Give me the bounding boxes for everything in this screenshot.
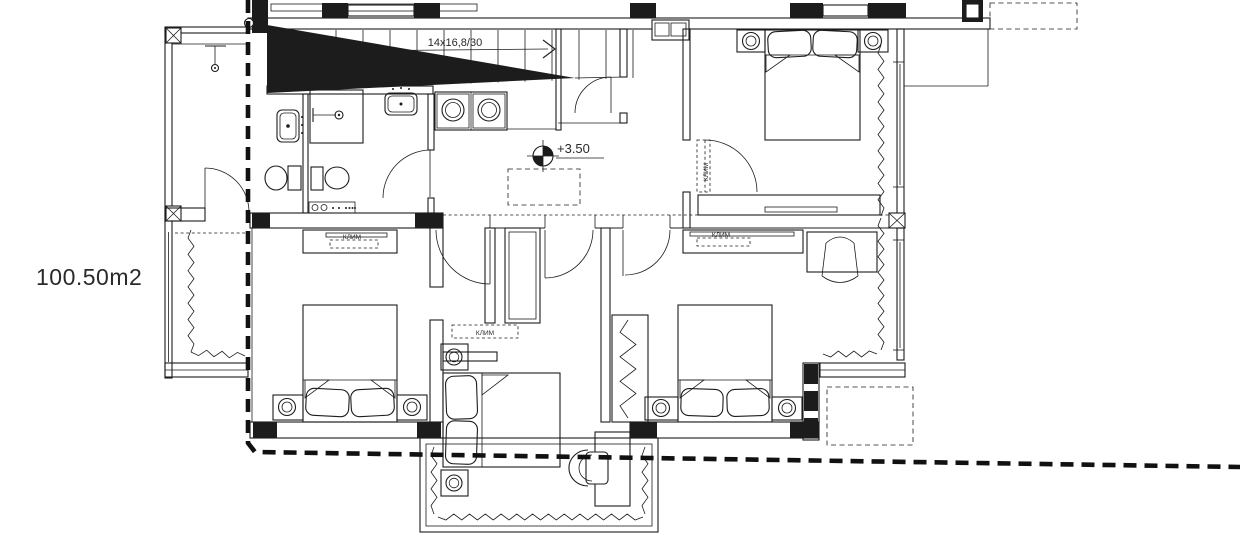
desk bbox=[807, 232, 877, 272]
roof-overhang-outline bbox=[990, 3, 1077, 29]
level-datum-marker bbox=[527, 140, 559, 172]
curtain-zigzag bbox=[878, 45, 884, 216]
ac-unit-outline bbox=[697, 238, 750, 246]
ceiling-light-icon bbox=[205, 46, 226, 72]
curtain-zigzag bbox=[188, 230, 194, 352]
pillow bbox=[445, 375, 477, 419]
curtain-zigzag bbox=[823, 351, 877, 357]
bathroom-right bbox=[309, 87, 434, 213]
stair-cut-wedge bbox=[267, 25, 575, 93]
level-label: +3.50 bbox=[557, 141, 590, 156]
double-bed bbox=[303, 305, 397, 422]
nightstand bbox=[737, 30, 765, 52]
terrace-bottom bbox=[420, 432, 658, 532]
pillow bbox=[350, 388, 394, 417]
window bbox=[893, 62, 904, 187]
pillow bbox=[767, 30, 811, 58]
ac-label: КЛИМ bbox=[712, 232, 730, 239]
ac-unit-outline: КЛИМ bbox=[452, 325, 518, 338]
nightstand bbox=[273, 395, 303, 420]
towel-radiator bbox=[309, 202, 356, 213]
floor-plan-drawing: 14x16,8/30 bbox=[0, 0, 1240, 543]
pillow bbox=[812, 30, 857, 58]
column bbox=[166, 28, 181, 43]
clothes-zigzag bbox=[620, 320, 636, 418]
toilet bbox=[265, 166, 301, 190]
washing-machine bbox=[473, 94, 505, 128]
upper-hall: +3.50 bbox=[508, 20, 689, 205]
landing-door bbox=[575, 77, 611, 113]
nightstand bbox=[858, 30, 888, 52]
floor-plan-canvas: 14x16,8/30 bbox=[0, 0, 1240, 543]
pillow bbox=[445, 420, 477, 464]
closet bbox=[505, 228, 540, 323]
bathroom-left bbox=[265, 86, 433, 213]
wardrobe bbox=[698, 195, 880, 215]
bedroom-door: КЛИМ bbox=[697, 140, 757, 192]
wardrobe: КЛИМ bbox=[303, 230, 397, 253]
railing-zigzag bbox=[438, 514, 643, 520]
corridor bbox=[250, 213, 890, 284]
nightstand bbox=[772, 397, 802, 420]
shower bbox=[310, 90, 363, 143]
left-balcony-lower bbox=[165, 230, 248, 377]
wardrobe bbox=[612, 315, 648, 422]
desk-chair bbox=[822, 237, 858, 283]
sink bbox=[277, 110, 303, 142]
curtain-zigzag bbox=[878, 218, 884, 350]
wardrobe: КЛИМ bbox=[683, 230, 803, 253]
ac-label: КЛИМ bbox=[476, 330, 494, 337]
canopy-outline bbox=[827, 387, 913, 445]
staircase: 14x16,8/30 bbox=[267, 25, 633, 93]
ac-label: КЛИМ bbox=[703, 163, 710, 181]
balcony-door bbox=[205, 168, 249, 212]
nightstand bbox=[441, 344, 468, 370]
bedroom-top-right: КЛИМ bbox=[683, 29, 905, 228]
window bbox=[893, 240, 904, 350]
ac-unit-outline bbox=[330, 240, 378, 248]
area-label: 100.50m2 bbox=[36, 264, 142, 290]
double-bed bbox=[765, 30, 860, 140]
washing-machine bbox=[437, 94, 469, 128]
nightstand bbox=[397, 395, 427, 420]
corridor-door bbox=[623, 230, 670, 276]
curtain-zigzag bbox=[191, 350, 245, 358]
terrace-top-right bbox=[904, 3, 1077, 86]
corridor-door bbox=[545, 230, 593, 278]
sink bbox=[385, 87, 417, 115]
nightstand bbox=[645, 397, 678, 420]
left-balcony-upper bbox=[165, 27, 249, 378]
exterior-top-wall bbox=[245, 0, 991, 33]
bedroom-bottom-right: КЛИМ bbox=[612, 218, 913, 445]
stair-label: 14x16,8/30 bbox=[428, 37, 482, 49]
corridor-door bbox=[436, 230, 490, 284]
double-bed bbox=[678, 305, 772, 422]
ac-label: КЛИМ bbox=[343, 234, 361, 241]
ceiling-void-outline bbox=[508, 169, 580, 205]
nightstand bbox=[441, 470, 468, 496]
bedroom-bottom-left: КЛИМ bbox=[250, 228, 443, 438]
bathroom-door bbox=[383, 150, 430, 198]
column bbox=[889, 213, 905, 228]
toilet bbox=[311, 167, 349, 190]
